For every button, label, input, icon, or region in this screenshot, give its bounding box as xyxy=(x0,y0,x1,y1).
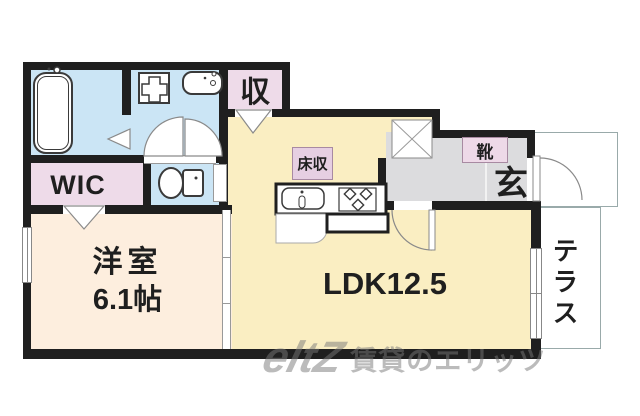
kitchen-island xyxy=(327,214,388,232)
room-label-western: 洋室 xyxy=(50,242,205,276)
kitchen-sink-icon xyxy=(282,188,324,209)
stove-icon xyxy=(339,188,376,211)
washing-machine-pan-icon xyxy=(139,73,169,103)
double-swing-door-icon xyxy=(144,117,222,156)
storage-door-icon xyxy=(236,110,271,133)
bathtub-icon xyxy=(34,67,72,153)
ldk-hall-door-icon xyxy=(392,210,435,250)
room-label-ldk: LDK12.5 xyxy=(294,265,476,303)
bath-door-icon xyxy=(108,129,130,149)
room-size-western: 6.1帖 xyxy=(50,280,205,314)
wic-door-icon xyxy=(64,206,104,229)
room-label-wic: WIC xyxy=(27,167,129,203)
floorplan: 収 WIC 洋室 6.1帖 LDK12.5 床収 靴 玄 テラス eltZ 賃貸… xyxy=(0,0,640,416)
room-label-terrace: テラス xyxy=(551,231,583,336)
toilet-icon xyxy=(159,168,203,198)
pillar-x-icon xyxy=(392,120,432,158)
room-label-floor-storage: 床収 xyxy=(292,147,333,180)
washbasin-icon xyxy=(183,72,222,94)
kitchen-floor-edge xyxy=(276,214,327,243)
room-label-storage: 収 xyxy=(226,68,284,110)
room-label-entrance: 玄 xyxy=(489,159,533,201)
kitchen-counter xyxy=(276,184,386,214)
fixtures-layer xyxy=(0,0,640,416)
entrance-door-icon xyxy=(533,156,582,201)
